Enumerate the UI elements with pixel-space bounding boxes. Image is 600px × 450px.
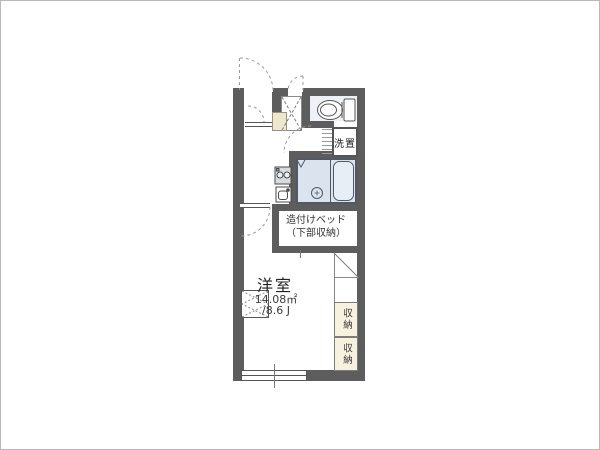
- floor-plan: 洗置 収納 収納 洋室 14.08㎡ /8.6 J 造付けベッド （下部収納）: [0, 0, 600, 450]
- genkan-closet-x: [282, 97, 301, 130]
- hatch-door-arc: [288, 76, 303, 91]
- bed-step-diagonal: [334, 253, 358, 277]
- shower-faucet-icon: [297, 160, 305, 167]
- genkan-door-arc: [248, 106, 264, 122]
- kitchen-door-arc: [241, 207, 270, 236]
- stove-icon: [275, 167, 291, 184]
- floor-plan-page: { "plan": { "type": "apartment-floor-pla…: [0, 0, 600, 450]
- entry-door-arc: [240, 58, 274, 91]
- sanitary-door-arc: [284, 126, 311, 153]
- plan-symbols: [0, 0, 600, 450]
- bathtub-icon: [334, 162, 354, 201]
- toilet-icon: [318, 99, 356, 121]
- bathroom-detail: [297, 159, 354, 203]
- window-left-dashes: [242, 291, 268, 317]
- sink-icon: [276, 187, 291, 202]
